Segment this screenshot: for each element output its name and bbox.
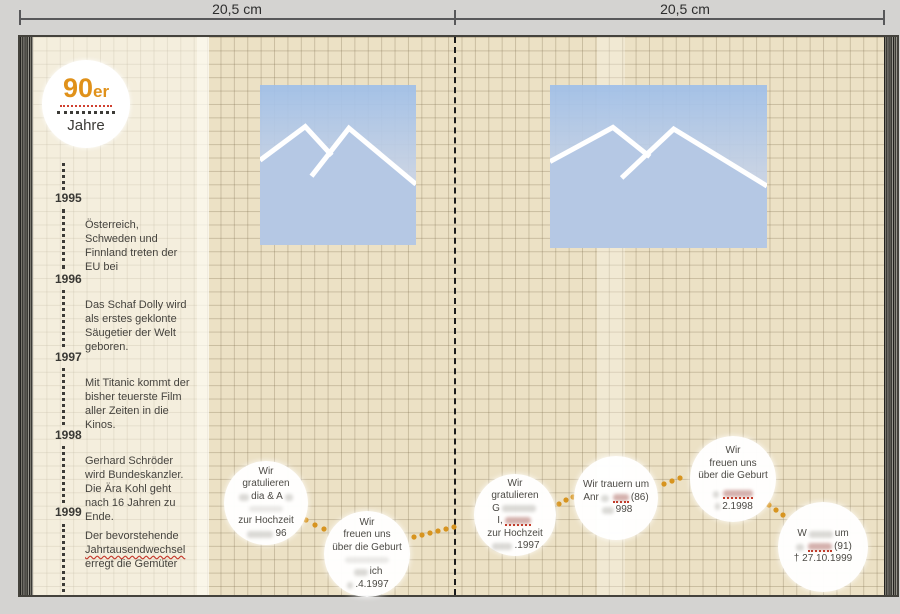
bubble-text: Wir [726, 445, 741, 458]
bubble-text: zur Hochzeit [238, 515, 294, 528]
bubble-text: .4.1997 [355, 579, 388, 592]
redacted-date [715, 503, 720, 510]
bubble-text: Wir [259, 466, 274, 479]
badge-dotted-divider [57, 111, 115, 114]
timeline-event-1998[interactable]: Gerhard Schröder wird Bundeskanzler. Die… [85, 454, 193, 524]
story-bubble-mourning-1998[interactable]: Wir trauern um Anr(86) 998 [574, 456, 658, 540]
bubble-text: Wir [360, 517, 375, 530]
photo-placeholder-right[interactable] [550, 85, 767, 248]
redacted-date [602, 507, 614, 514]
ruler-line [19, 18, 885, 20]
timeline-dotted-line [62, 368, 65, 425]
timeline-dotted-line [62, 163, 65, 190]
event-text-spellcheck: Jahrtausendwechsel [85, 544, 185, 556]
timeline-year-1996[interactable]: 1996 [55, 272, 82, 286]
timeline-dotted-line [62, 290, 65, 347]
timeline-dotted-line [62, 446, 65, 503]
binding-edge-right [884, 37, 897, 595]
bubble-text: um [835, 528, 849, 541]
ruler-tick-left [19, 10, 21, 25]
bubble-text: Wir trauern um [583, 479, 649, 492]
redacted-name [796, 544, 804, 551]
timeline-event-1995[interactable]: Österreich, Schweden und Finnland treten… [85, 218, 193, 274]
bubble-text: G [492, 503, 500, 516]
ruler-width-label-right: 20,5 cm [637, 1, 733, 17]
decade-badge[interactable]: 90er Jahre [42, 60, 130, 148]
decade-label: 90er [60, 75, 112, 107]
timeline-year-1999[interactable]: 1999 [55, 505, 82, 519]
story-bubble-wedding-1997[interactable]: Wir gratulieren G I, zur Hochzeit .1997 [474, 474, 556, 556]
center-fold-line [454, 37, 456, 595]
bubble-text: 2.1998 [722, 501, 753, 514]
redacted-name [613, 494, 629, 501]
redacted-date [347, 582, 353, 589]
bubble-text: † 27.10.1999 [794, 553, 852, 566]
bubble-text: (86) [631, 492, 649, 505]
mountains-icon [550, 85, 767, 248]
ruler-width-label-left: 20,5 cm [189, 1, 285, 17]
bubble-text: .1997 [514, 540, 539, 553]
bubble-text: gratulieren [242, 478, 289, 491]
timeline-dotted-line [62, 209, 65, 269]
bubble-text: dia & A [251, 491, 283, 504]
redacted-text [809, 531, 833, 538]
timeline-event-1996[interactable]: Das Schaf Dolly wird als erstes geklonte… [85, 298, 193, 354]
mountains-icon [260, 85, 416, 245]
event-text: Der bevorstehende [85, 530, 179, 542]
photo-placeholder-left[interactable] [260, 85, 416, 245]
album-designer-canvas: 20,5 cm 20,5 cm 90er Jahre 1995 Österrei… [0, 0, 900, 614]
redacted-name [505, 517, 531, 524]
event-text: erregt die Gemüter [85, 558, 177, 570]
bubble-text: zur Hochzeit [487, 528, 543, 541]
timeline-event-1999[interactable]: Der bevorstehende Jahrtausendwechsel err… [85, 529, 193, 571]
spellcheck-underline [808, 543, 832, 552]
redacted-name [285, 494, 293, 501]
bubble-text: 998 [616, 504, 633, 517]
bubble-text: (91) [834, 541, 852, 554]
redacted-name [502, 505, 536, 512]
spellcheck-underline [723, 490, 753, 499]
ruler-tick-center [454, 10, 456, 25]
timeline-year-1998[interactable]: 1998 [55, 428, 82, 442]
bubble-text: W [797, 528, 806, 541]
bubble-text: freuen uns [343, 529, 390, 542]
bubble-text: Wir [508, 478, 523, 491]
redacted-name [601, 495, 609, 502]
timeline-year-1997[interactable]: 1997 [55, 350, 82, 364]
redacted-text [345, 557, 389, 563]
bubble-text: gratulieren [491, 490, 538, 503]
ruler-tick-right [883, 10, 885, 25]
redacted-text [249, 506, 283, 512]
bubble-text: ich [370, 566, 383, 579]
story-bubble-mourning-1999[interactable]: Wum (91) † 27.10.1999 [778, 502, 868, 592]
story-bubble-wedding-1996[interactable]: Wir gratulieren dia & A zur Hochzeit 96 [224, 461, 308, 545]
spellcheck-underline [613, 494, 629, 503]
timeline-dotted-line [62, 524, 65, 592]
timeline-event-1997[interactable]: Mit Titanic kommt der bisher teuerste Fi… [85, 376, 193, 432]
page-edge-shade-left [197, 37, 209, 595]
redacted-name [239, 494, 249, 501]
redacted-name [354, 569, 368, 576]
badge-subtitle: Jahre [67, 117, 105, 134]
story-bubble-birth-1997[interactable]: Wir freuen uns über die Geburt ich .4.19… [324, 511, 410, 597]
timeline-year-1995[interactable]: 1995 [55, 191, 82, 205]
bubble-text: freuen uns [709, 458, 756, 471]
redacted-date [492, 543, 512, 550]
bubble-text: I, [497, 515, 503, 528]
bubble-text: Anr [583, 492, 599, 505]
redacted-name [808, 543, 832, 550]
story-bubble-birth-1998[interactable]: Wir freuen uns über die Geburt 2.1998 [690, 436, 776, 522]
redacted-name [723, 490, 753, 497]
binding-edge-left [20, 37, 33, 595]
redacted-date [247, 531, 273, 538]
redacted-text [713, 491, 719, 498]
bubble-text: 96 [275, 528, 286, 541]
spellcheck-underline [505, 517, 531, 526]
bubble-text: über die Geburt [332, 542, 402, 555]
bubble-text: über die Geburt [698, 470, 768, 483]
